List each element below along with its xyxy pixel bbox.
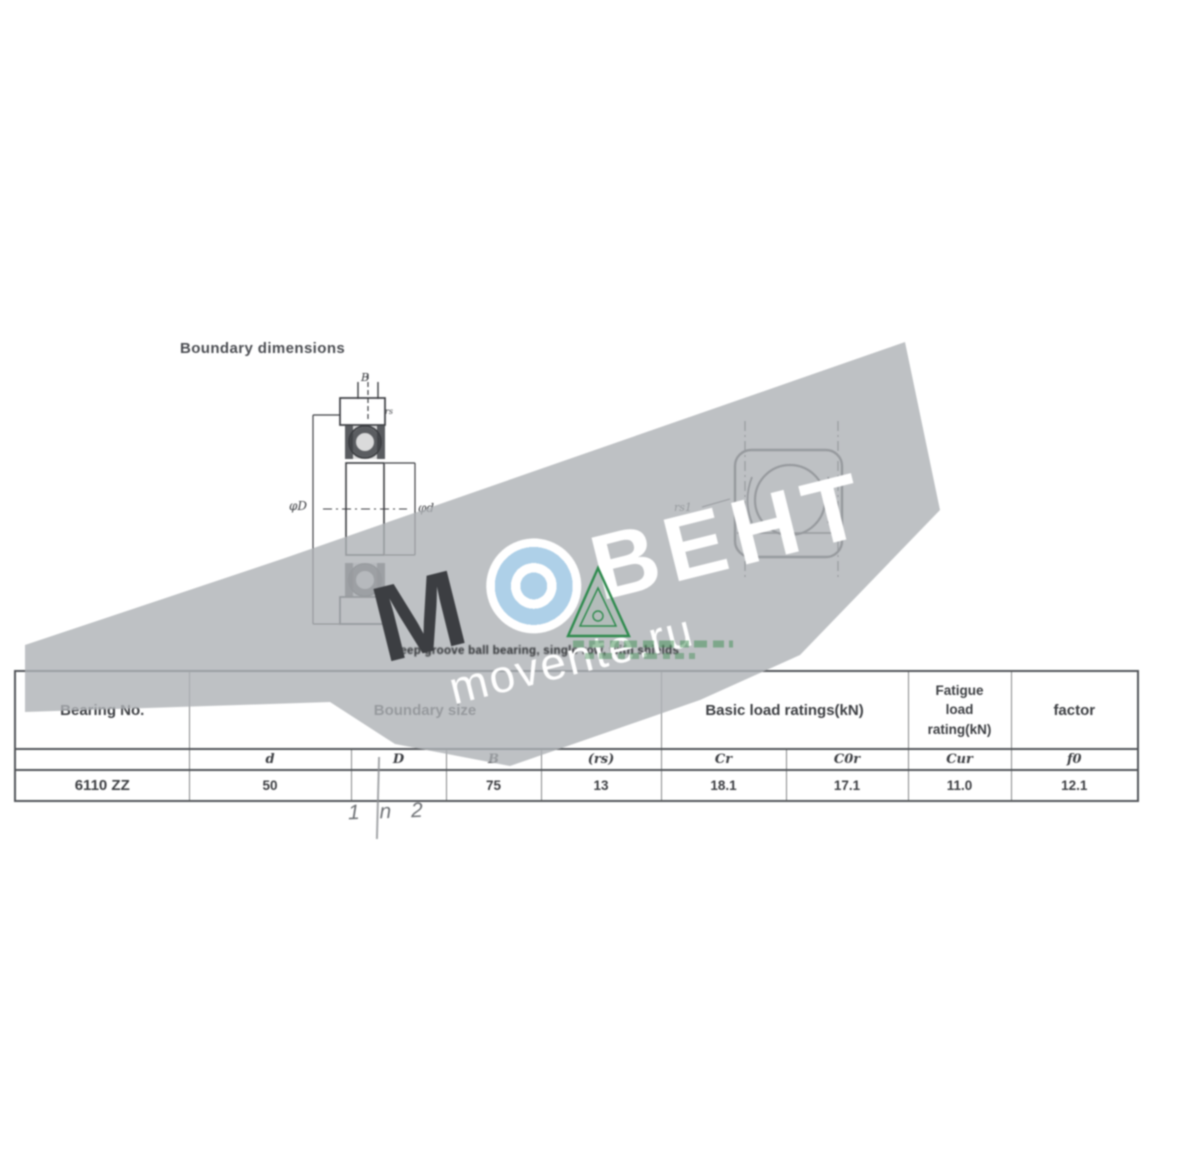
dim-label-outer-dia: φD (289, 499, 307, 513)
subheader-rs: (rs) (541, 749, 661, 770)
page-title: Boundary dimensions (180, 340, 345, 357)
fatigue-line-3: rating(kN) (909, 720, 1011, 740)
subheader-empty (15, 749, 189, 770)
green-cert-logo (565, 558, 750, 666)
col-header-factor: factor (1011, 671, 1138, 749)
col-header-fatigue: Fatigue load rating(kN) (908, 671, 1011, 749)
cell-f0: 12.1 (1011, 770, 1138, 801)
subheader-d: d (189, 749, 351, 770)
cell-cr: 18.1 (661, 770, 786, 801)
outer-ring-top (340, 398, 385, 425)
subheader-f0: f0 (1011, 749, 1138, 770)
table-data-row: 6110 ZZ 50 75 13 18.1 17.1 11.0 12.1 (15, 770, 1138, 801)
datasheet-page: Boundary dimensions B rs (0, 0, 1200, 1165)
scanned-document: Boundary dimensions B rs (0, 0, 1200, 1165)
cell-d: 50 (189, 770, 351, 801)
table-subheader-row: d D B (rs) Cr C0r Cur f0 (15, 749, 1138, 770)
dim-label-B: B (360, 371, 369, 384)
subheader-cr: Cr (661, 749, 786, 770)
cell-D (351, 770, 446, 801)
subheader-c0r: C0r (786, 749, 908, 770)
subheader-D: D (351, 749, 446, 770)
dim-label-rs-top: rs (385, 407, 393, 416)
fatigue-header-stack: Fatigue load rating(kN) (909, 681, 1011, 740)
cell-B: 75 (446, 770, 541, 801)
subheader-cur: Cur (908, 749, 1011, 770)
fatigue-line-1: Fatigue (909, 681, 1011, 701)
pencil-note: 1 n 2 (348, 799, 431, 826)
cell-c0r: 17.1 (786, 770, 908, 801)
cell-rs: 13 (541, 770, 661, 801)
fatigue-line-2: load (909, 700, 1011, 720)
cell-cur: 11.0 (908, 770, 1011, 801)
cell-bearing-no: 6110 ZZ (15, 770, 189, 801)
